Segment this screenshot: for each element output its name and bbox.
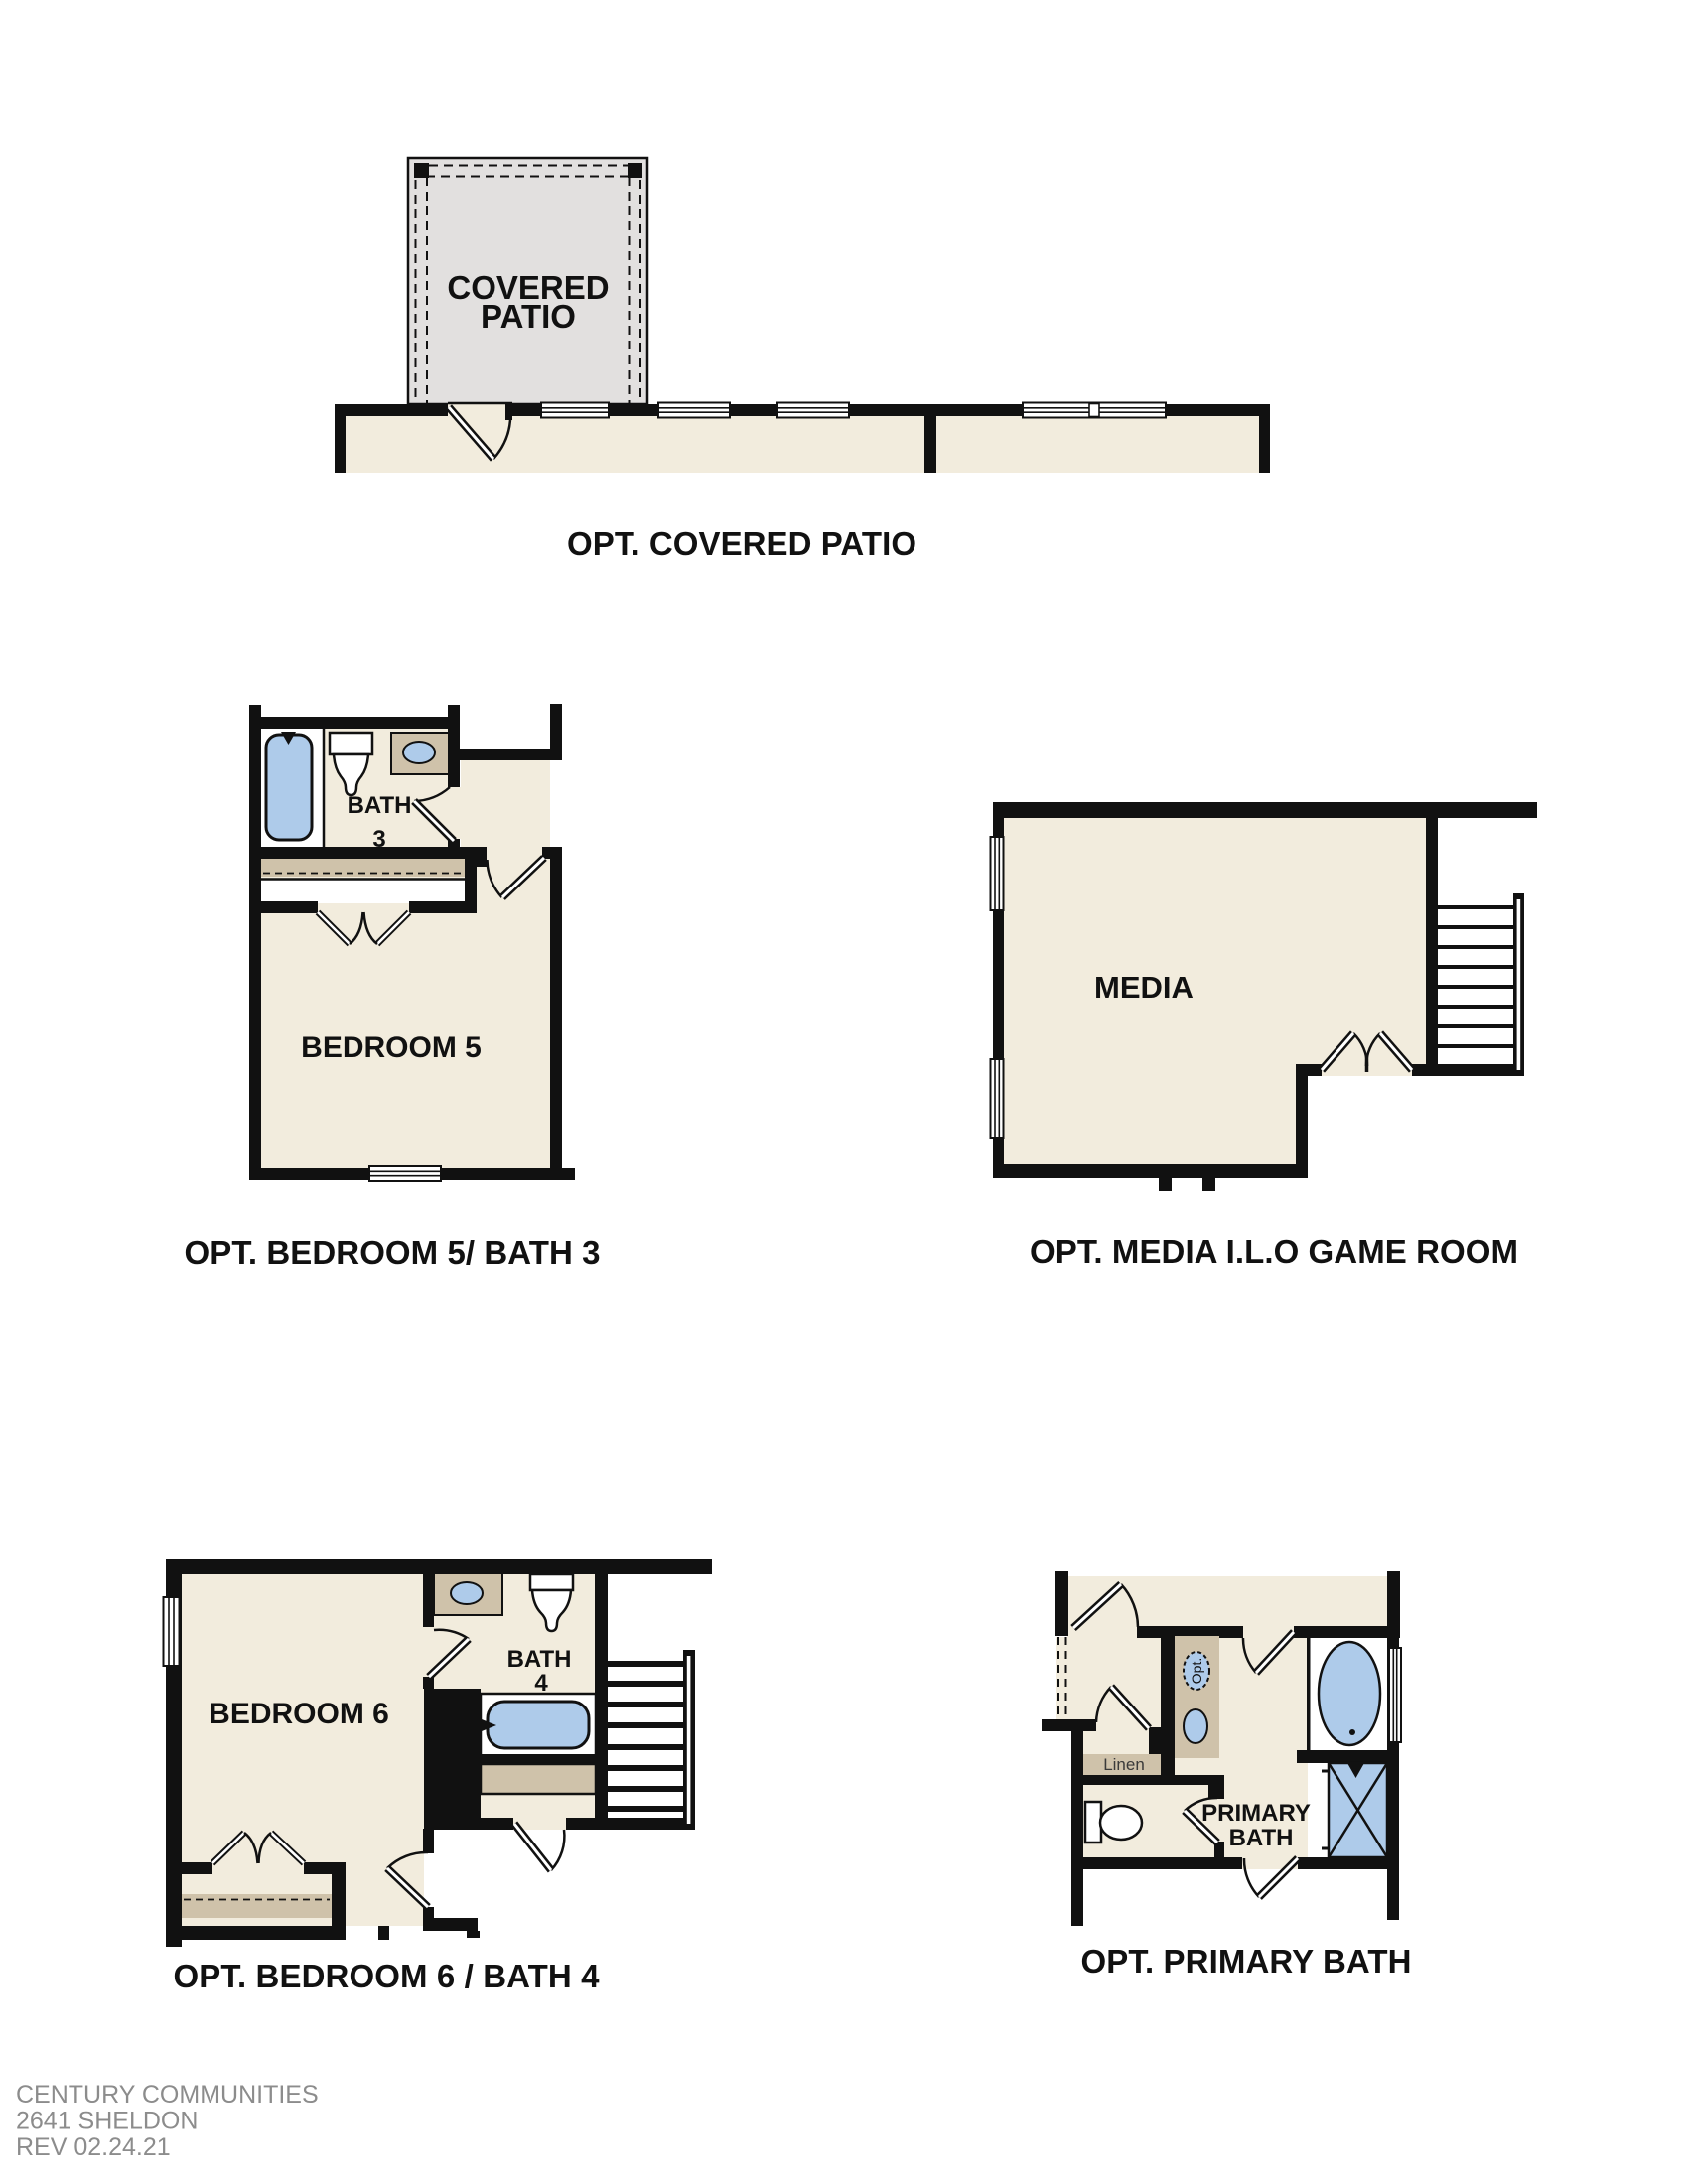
svg-text:Linen: Linen [1103,1755,1145,1774]
svg-text:OPT. BEDROOM 5/ BATH 3: OPT. BEDROOM 5/ BATH 3 [185,1234,601,1271]
svg-text:MEDIA: MEDIA [1094,970,1194,1005]
svg-text:BEDROOM 6: BEDROOM 6 [209,1698,389,1730]
svg-text:Opt.: Opt. [1189,1658,1204,1684]
svg-text:OPT. BEDROOM 6 / BATH 4: OPT. BEDROOM 6 / BATH 4 [174,1958,601,1994]
svg-text:OPT. MEDIA I.L.O GAME ROOM: OPT. MEDIA I.L.O GAME ROOM [1030,1233,1518,1270]
svg-text:OPT. COVERED PATIO: OPT. COVERED PATIO [567,525,916,562]
svg-text:2641 SHELDON: 2641 SHELDON [16,2108,198,2135]
svg-text:BATH: BATH [507,1646,572,1673]
svg-text:PRIMARY: PRIMARY [1201,1800,1311,1827]
svg-text:BEDROOM 5: BEDROOM 5 [301,1031,482,1064]
svg-text:CENTURY COMMUNITIES: CENTURY COMMUNITIES [16,2081,319,2109]
svg-text:BATH: BATH [1229,1825,1294,1851]
svg-text:4: 4 [534,1670,548,1697]
svg-text:BATH: BATH [348,792,412,819]
svg-text:PATIO: PATIO [481,298,576,335]
svg-text:REV 02.24.21: REV 02.24.21 [16,2133,171,2161]
svg-text:OPT. PRIMARY BATH: OPT. PRIMARY BATH [1081,1943,1412,1979]
